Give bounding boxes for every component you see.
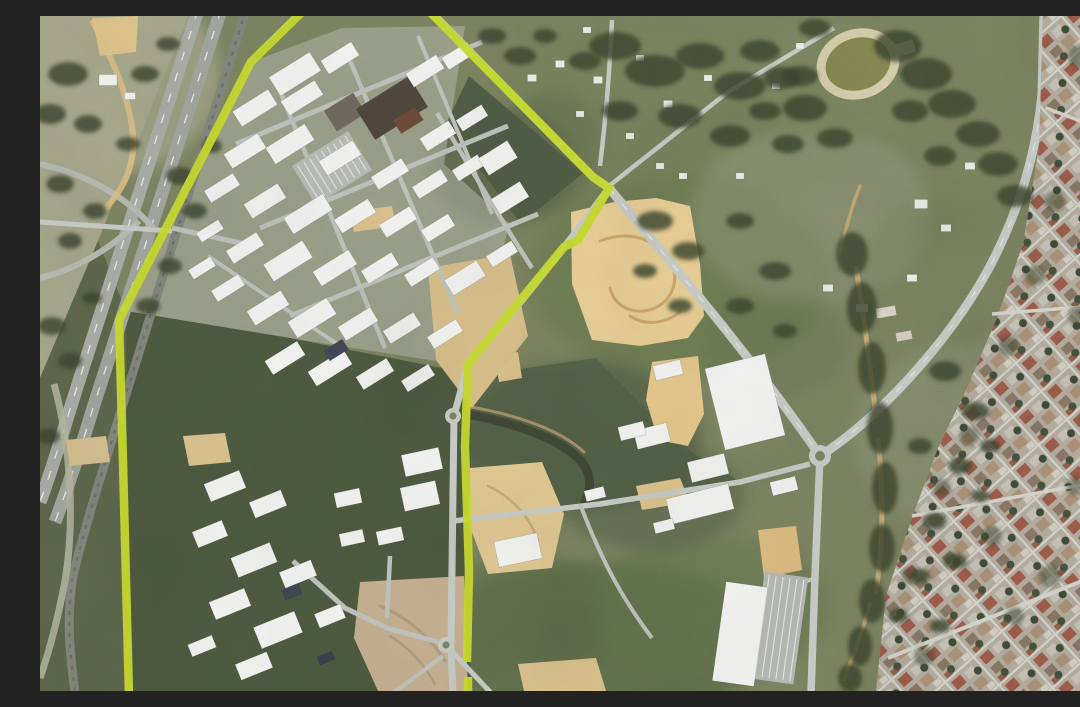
tree-clump: [888, 609, 908, 623]
roundabout-island: [449, 412, 456, 419]
tree-clump: [48, 62, 88, 86]
tree-clump: [740, 40, 780, 62]
rural-house: [583, 27, 591, 33]
tree-clump: [726, 298, 754, 314]
tree-clump: [131, 66, 159, 82]
tree-clump: [74, 115, 102, 133]
tree-clump: [858, 342, 886, 394]
tree-clump: [82, 292, 102, 304]
rural-house: [679, 173, 687, 179]
tree-clump: [672, 242, 704, 260]
tree-clump: [504, 47, 536, 65]
tree-clump: [156, 37, 180, 51]
tree-clump: [799, 19, 831, 37]
tree-clump: [668, 299, 692, 313]
tree-clump: [892, 100, 928, 122]
tree-clump: [602, 101, 638, 121]
tree-clump: [676, 43, 724, 69]
tree-clump: [726, 213, 754, 229]
tree-clump: [900, 58, 952, 90]
tree-clump: [859, 579, 885, 623]
suburb-tree: [1039, 565, 1061, 587]
aerial-photo: [40, 16, 1080, 691]
tree-clump: [759, 262, 791, 280]
tree-clump: [929, 361, 961, 381]
tree-clump: [867, 402, 893, 454]
tree-clump: [58, 353, 82, 369]
rural-house: [736, 173, 744, 179]
tree-clump: [772, 135, 804, 153]
tree-clump: [997, 185, 1033, 207]
tree-clump: [930, 619, 950, 633]
rural-house: [907, 275, 917, 282]
rural-house: [528, 75, 537, 82]
rural-house: [556, 61, 565, 68]
tree-clump: [633, 264, 657, 278]
tree-clump: [569, 52, 601, 70]
rural-house: [915, 200, 928, 209]
tree-clump: [836, 232, 868, 276]
suburb-tree: [1025, 266, 1045, 286]
tree-clump: [978, 152, 1018, 176]
tree-clump: [46, 175, 74, 193]
tree-clump: [956, 121, 1000, 147]
tree-clump: [783, 95, 827, 121]
tree-clump: [924, 146, 956, 166]
suburb-tree: [1045, 191, 1065, 211]
building: [99, 75, 117, 86]
building: [125, 93, 136, 100]
suburb-tree: [1006, 607, 1024, 625]
tree-clump: [478, 28, 506, 44]
tree-clump: [714, 72, 766, 100]
rural-house: [594, 77, 603, 84]
tree-clump: [183, 203, 207, 219]
suburb-tree: [998, 336, 1018, 356]
sand-patch: [92, 16, 138, 56]
tree-clump: [58, 233, 82, 249]
tree-clump: [928, 90, 976, 118]
rural-house: [823, 285, 833, 292]
tree-clump: [83, 203, 107, 219]
tree-clump: [872, 462, 898, 514]
tree-clump: [136, 298, 160, 314]
rural-house: [704, 75, 712, 81]
rural-house: [656, 163, 664, 169]
tree-clump: [749, 102, 781, 120]
tree-clump: [943, 553, 967, 569]
tree-clump: [625, 55, 685, 87]
tree-clump: [961, 402, 989, 420]
street: [387, 556, 390, 618]
tree-clump: [980, 439, 1000, 453]
tree-clump: [658, 104, 702, 128]
rural-house: [626, 133, 634, 139]
tree-clump: [923, 513, 947, 529]
tree-clump: [817, 128, 853, 148]
tree-clump: [116, 137, 140, 151]
map-figure: [40, 16, 1080, 691]
tree-clump: [847, 282, 877, 334]
suburb-tree: [914, 646, 934, 666]
rural-house: [965, 163, 975, 170]
rural-house: [796, 43, 804, 49]
tree-clump: [773, 324, 797, 338]
tree-clump: [533, 29, 557, 43]
tree-clump: [710, 125, 750, 147]
suburb-tree: [982, 526, 1002, 546]
roundabout-island: [442, 641, 449, 648]
rural-house: [941, 225, 951, 232]
tree-clump: [838, 664, 862, 691]
roundabout-island: [815, 451, 825, 461]
tree-clump: [158, 258, 182, 274]
tree-clump: [869, 524, 895, 572]
tree-clump: [908, 438, 932, 454]
sand-patch: [66, 436, 110, 466]
rural-house: [576, 111, 584, 117]
suburb-tree: [933, 479, 951, 497]
tree-clump: [637, 211, 673, 231]
tree-clump: [948, 458, 972, 474]
tree-clump: [848, 626, 872, 666]
sand-patch: [758, 526, 802, 578]
suburb-tree: [960, 426, 980, 446]
tree-clump: [764, 67, 800, 89]
tree-clump: [874, 30, 922, 62]
tree-clump: [970, 490, 990, 502]
tree-clump: [910, 569, 930, 583]
sand-patch: [183, 433, 231, 466]
